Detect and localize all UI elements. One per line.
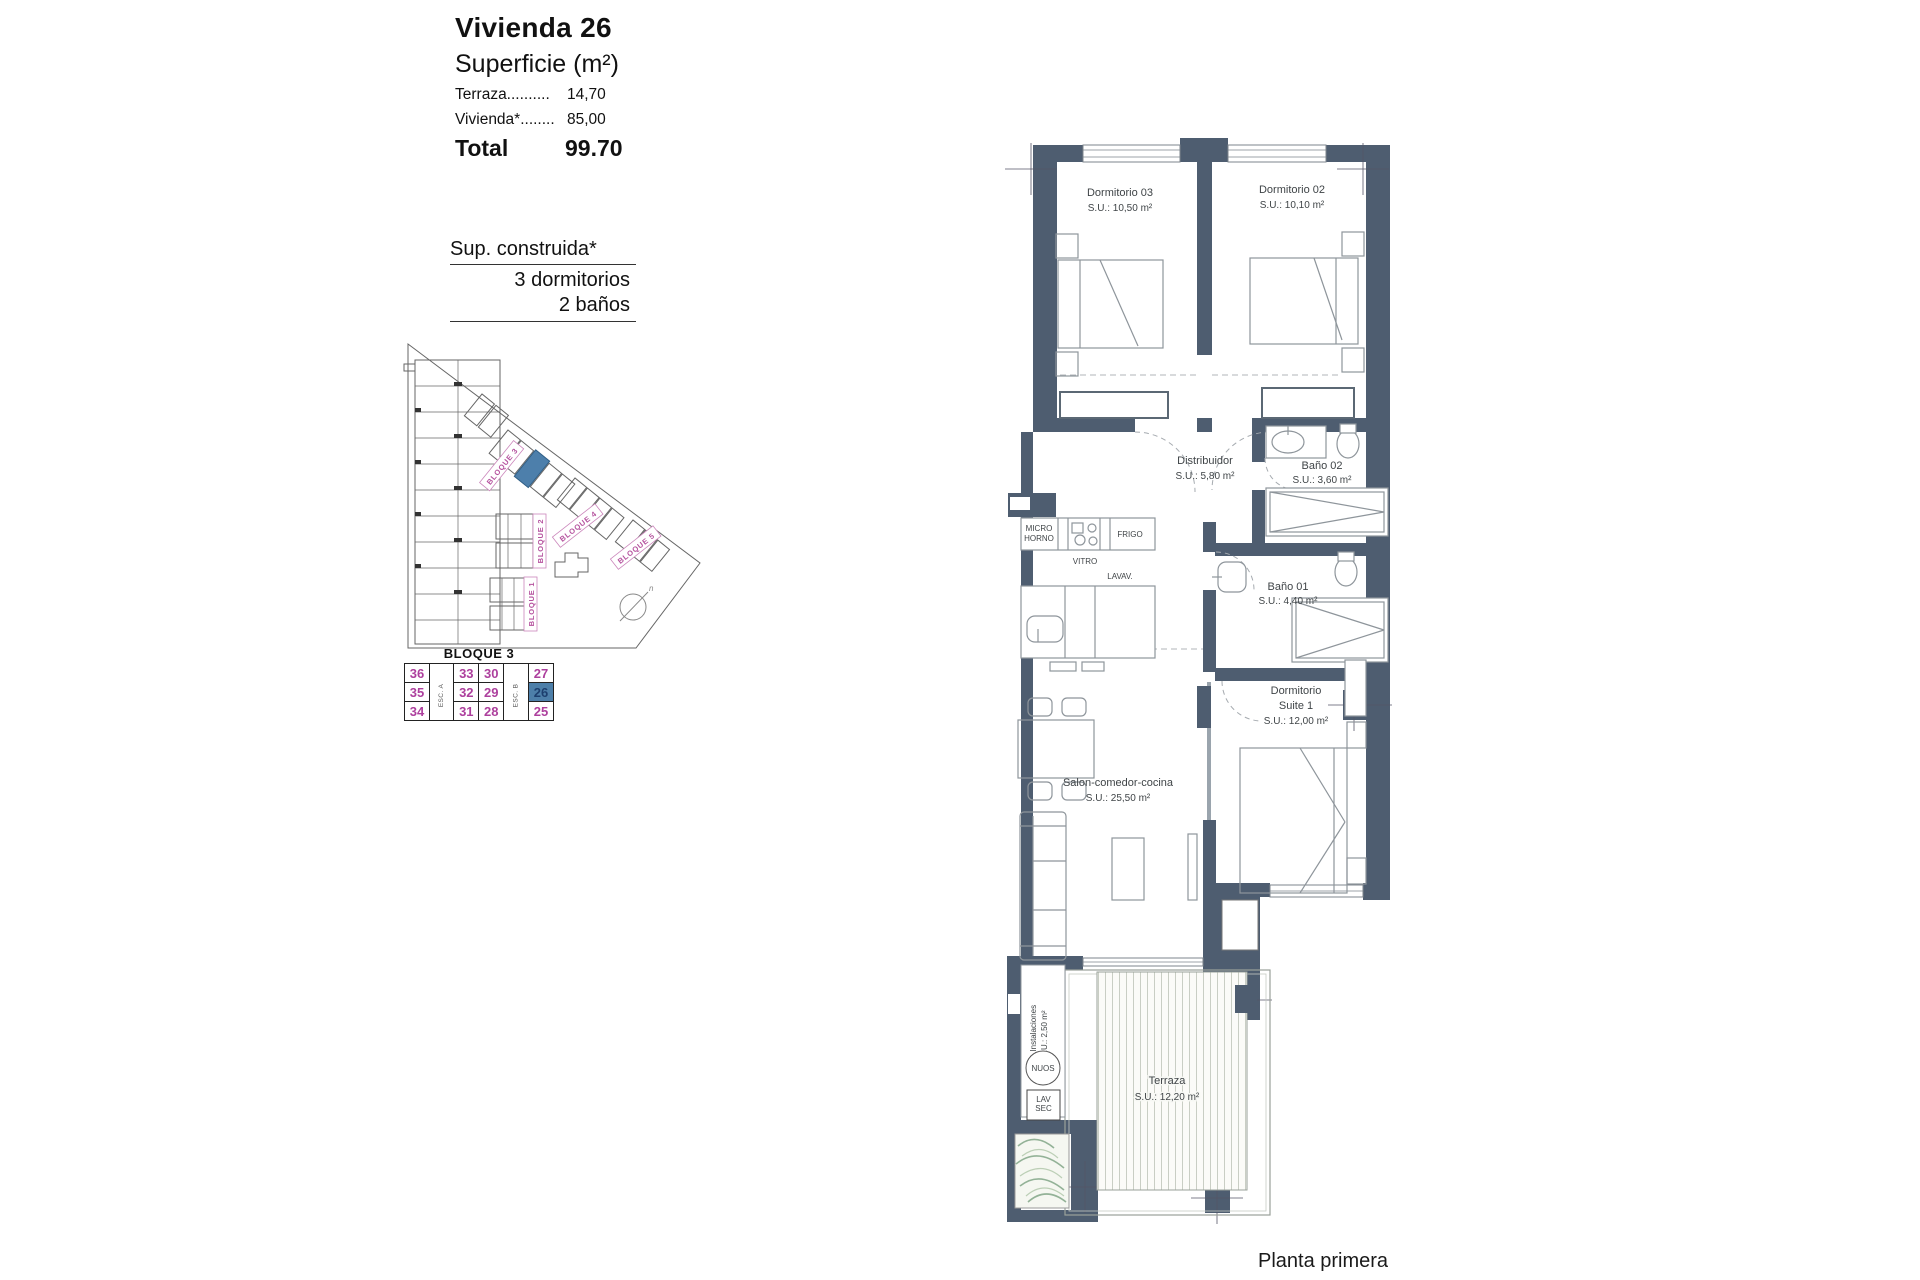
dorm02-area: S.U.: 10,10 m² [1260, 200, 1325, 211]
island-counter: LAVAV. [1021, 572, 1155, 671]
suite-area: S.U.: 12,00 m² [1264, 716, 1329, 727]
window-dorm03 [1083, 145, 1180, 162]
window-dorm02 [1228, 145, 1326, 162]
svg-text:LAV: LAV [1036, 1095, 1051, 1104]
salon-label: Salon-comedor-cocina [1063, 777, 1174, 789]
angled-units-top [464, 394, 508, 437]
unit-cell: 31 [454, 702, 479, 721]
instalaciones-label: A.Instalaciones [1029, 1005, 1038, 1059]
planter [1015, 1134, 1069, 1208]
svg-text:LAVAV.: LAVAV. [1107, 572, 1133, 581]
unit-cell: 27 [528, 664, 553, 683]
basin-icon [1218, 562, 1246, 592]
vivienda-value: 85,00 [567, 111, 606, 129]
toilet-icon [1337, 430, 1359, 458]
unit-cell: 28 [479, 702, 504, 721]
suite-label-2: Suite 1 [1279, 700, 1313, 712]
stair-b-label: ESC. B [504, 664, 529, 721]
terraza-label: Terraza [1149, 1075, 1187, 1087]
stair-a-label: ESC. A [429, 664, 453, 721]
bano01-label: Baño 01 [1268, 581, 1309, 593]
bloque4-tag: BLOQUE 4 [552, 504, 603, 547]
bloque1-units [490, 578, 525, 630]
total-label: Total [455, 135, 555, 162]
bloque2-tag: BLOQUE 2 [533, 514, 546, 568]
suite-label-1: Dormitorio [1271, 685, 1322, 697]
svg-text:SEC: SEC [1035, 1104, 1052, 1113]
total-value: 99.70 [565, 135, 623, 162]
terraza-area: S.U.: 12,20 m² [1135, 1092, 1200, 1103]
coffee-table [1112, 838, 1144, 900]
page-title: Vivienda 26 [455, 12, 655, 44]
bloque3-tag: BLOQUE 3 [480, 441, 524, 491]
svg-text:VITRO: VITRO [1073, 557, 1097, 566]
svg-text:NUOS: NUOS [1031, 1064, 1054, 1073]
unit-cell: 36 [405, 664, 430, 683]
bloque5-tag: BLOQUE 5 [610, 526, 661, 569]
floorplan-sheet: Vivienda 26 Superficie (m²) Terraza.....… [0, 0, 1920, 1280]
terraza-label: Terraza.......... [455, 86, 567, 104]
unit-cell: 30 [479, 664, 504, 683]
bano02-label: Baño 02 [1302, 460, 1343, 472]
unit-cell: 32 [454, 683, 479, 702]
sup-construida-label: Sup. construida* [450, 238, 636, 265]
toilet-icon [1335, 558, 1357, 586]
svg-text:BLOQUE 2: BLOQUE 2 [536, 519, 545, 564]
banos-label: 2 baños [450, 294, 636, 322]
bano01-area: S.U.: 4,40 m² [1259, 596, 1319, 607]
kitchen-counter: MICRO HORNO FRIGO VITRO [1021, 518, 1155, 566]
shower01-icon [1292, 598, 1388, 662]
plan-caption: Planta primera [1258, 1250, 1388, 1273]
clubhouse-building [555, 553, 588, 577]
instalaciones-room: A.Instalaciones S.U.: 2,50 m² NUOS LAV S… [1021, 965, 1065, 1120]
bano02-area: S.U.: 3,60 m² [1293, 475, 1353, 486]
unit-table: BLOQUE 3 36 ESC. A 33 30 ESC. B 27 35 32… [404, 646, 554, 721]
bloque1-tag: BLOQUE 1 [524, 577, 537, 631]
bath01-fixtures [1212, 552, 1388, 662]
salon-area: S.U.: 25,50 m² [1086, 793, 1151, 804]
terrace-slider-door [1083, 958, 1203, 966]
window-suite [1270, 885, 1363, 897]
built-surface-summary: Sup. construida* 3 dormitorios 2 baños [450, 238, 636, 322]
north-arrow-icon: n [620, 584, 654, 621]
unit-cell: 29 [479, 683, 504, 702]
vivienda-row: Vivienda*........ 85,00 [455, 111, 655, 129]
plot-boundary [408, 344, 700, 648]
unit-table-title: BLOQUE 3 [404, 646, 554, 661]
svg-text:MICRO: MICRO [1026, 524, 1053, 533]
dorm02-furniture [1250, 232, 1364, 418]
svg-text:BLOQUE 4: BLOQUE 4 [558, 509, 599, 544]
instalaciones-area: S.U.: 2,50 m² [1040, 1010, 1049, 1057]
dormitorios-label: 3 dormitorios [450, 269, 636, 292]
total-row: Total 99.70 [455, 135, 655, 162]
apartment-floor-plan: MICRO HORNO FRIGO VITRO LAVAV. [1000, 130, 1420, 1250]
unit-cell-highlighted-26: 26 [528, 683, 553, 702]
distribuidor-area: S.U.: 5,80 m² [1176, 471, 1236, 482]
dorm03-furniture [1056, 234, 1168, 418]
table-row: 34 31 28 25 [405, 702, 554, 721]
svg-text:HORNO: HORNO [1024, 534, 1054, 543]
svg-text:FRIGO: FRIGO [1117, 530, 1142, 539]
unit-cell: 35 [405, 683, 430, 702]
unit-cell: 33 [454, 664, 479, 683]
tv-unit [1188, 834, 1197, 900]
surface-subtitle: Superficie (m²) [455, 50, 655, 79]
terraza-value: 14,70 [567, 86, 606, 104]
distribuidor-label: Distribuidor [1177, 455, 1233, 467]
terraza-row: Terraza.......... 14,70 [455, 86, 655, 104]
table-row: 36 ESC. A 33 30 ESC. B 27 [405, 664, 554, 683]
site-plan: BLOQUE 3 BLOQUE 4 BLOQUE 5 BLOQUE 2 BLOQ… [390, 330, 730, 660]
table-row: 35 32 29 26 [405, 683, 554, 702]
dorm03-label: Dormitorio 03 [1087, 187, 1153, 199]
vivienda-label: Vivienda*........ [455, 111, 567, 129]
svg-text:n: n [649, 584, 654, 593]
unit-cell: 34 [405, 702, 430, 721]
bloque2-units [496, 514, 533, 568]
svg-text:BLOQUE 1: BLOQUE 1 [527, 582, 536, 627]
unit-cell: 25 [528, 702, 553, 721]
dorm02-label: Dormitorio 02 [1259, 184, 1325, 196]
shower02-icon [1266, 488, 1388, 536]
sink-icon [1027, 616, 1063, 642]
title-block: Vivienda 26 Superficie (m²) Terraza.....… [455, 12, 655, 162]
dorm03-area: S.U.: 10,50 m² [1088, 203, 1153, 214]
